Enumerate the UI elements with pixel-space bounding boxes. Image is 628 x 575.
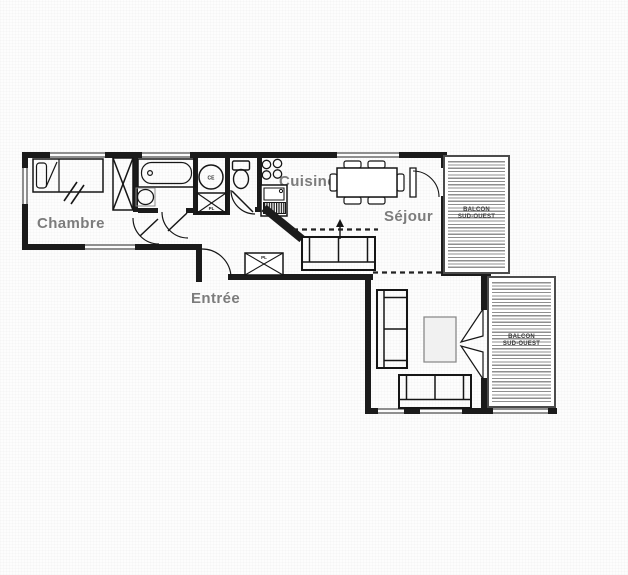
door-wc bbox=[231, 190, 255, 214]
bed-symbol bbox=[33, 159, 103, 192]
door-chambre bbox=[133, 218, 159, 244]
closet-bath: PL bbox=[197, 193, 226, 213]
bathroom-sink bbox=[136, 188, 155, 206]
break-marks bbox=[64, 182, 84, 204]
plan-linework: CE PL bbox=[0, 0, 628, 575]
wardrobe-chambre bbox=[113, 158, 133, 210]
toilet-symbol bbox=[233, 161, 250, 189]
floor-plan: BALCON SUD-OUEST BALCON SUD-OUEST Chambr… bbox=[0, 0, 628, 575]
bathtub-symbol bbox=[138, 159, 195, 187]
closet-entree: PL bbox=[245, 253, 283, 275]
washer-text: CE bbox=[208, 176, 216, 182]
closet-entree-label: PL bbox=[261, 255, 267, 260]
sofa-vertical bbox=[377, 290, 407, 368]
door-balcony-upper bbox=[410, 168, 439, 197]
stove-symbol bbox=[262, 159, 281, 179]
closet-bath-label: PL bbox=[209, 206, 215, 211]
dining-table bbox=[330, 161, 404, 204]
sofa-horizontal bbox=[399, 375, 471, 408]
coffee-table bbox=[424, 317, 456, 362]
sofa-bed bbox=[302, 237, 375, 270]
french-door-balcony bbox=[461, 309, 483, 379]
door-entrance bbox=[202, 249, 231, 278]
washing-machine: CE bbox=[199, 165, 223, 189]
door-bathroom bbox=[162, 212, 188, 238]
